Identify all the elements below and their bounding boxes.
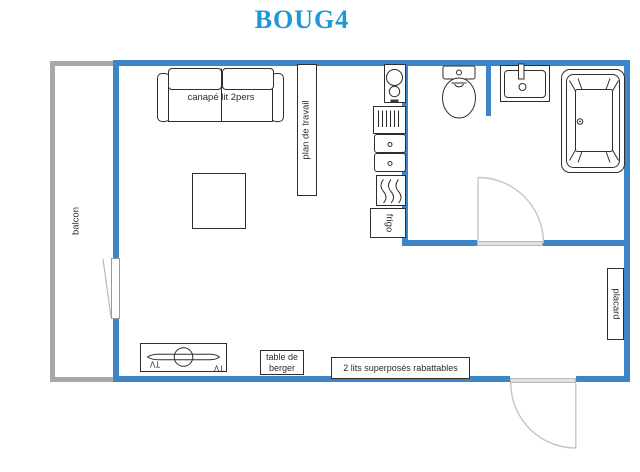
balcony-wall-top <box>50 61 113 66</box>
wall-left-lower <box>113 319 119 382</box>
toilet <box>443 66 476 118</box>
stove-unit <box>384 64 406 103</box>
entrance-door <box>511 383 576 448</box>
bathtub <box>561 69 625 173</box>
balcony-label: balcon <box>72 207 83 235</box>
kitchen-drawer-bottom <box>374 153 406 172</box>
coffee-table <box>192 173 246 229</box>
bathroom-door-lintel <box>477 241 543 246</box>
sofa-back-cushion-left <box>168 68 222 90</box>
radiator <box>376 175 406 206</box>
wall-top <box>113 60 630 66</box>
balcony-window-frame <box>111 258 120 319</box>
wall-toilet-stub <box>486 60 491 116</box>
closet-label: placard <box>610 288 621 319</box>
balcony-window-leaf <box>103 259 111 317</box>
shepherd-table: table de berger <box>260 350 304 375</box>
worktop-label: plan de travail <box>302 100 313 159</box>
wall-bottom-right <box>576 376 630 382</box>
plan-title: BOUG4 <box>0 5 604 35</box>
tv-label-right: TV <box>213 363 223 372</box>
wall-bathroom-bottom-right <box>543 240 630 246</box>
fridge-label: frigo <box>382 214 393 232</box>
sofa-back-cushion-right <box>222 68 274 90</box>
balcony-wall-bottom <box>50 377 113 382</box>
dish-rack-unit <box>373 106 406 134</box>
shepherd-table-label: table de berger <box>261 352 303 374</box>
bathroom-sink-basin <box>504 70 546 98</box>
floorplan-canvas: BOUG4 table de berger 2 lits supe <box>0 0 640 472</box>
bunk-beds-label: 2 lits superposés rabattables <box>343 363 458 374</box>
bathroom-door <box>478 178 544 244</box>
entrance-door-lintel <box>510 378 576 383</box>
bunk-beds: 2 lits superposés rabattables <box>331 357 470 379</box>
sofa-label: canapé lit 2pers <box>158 93 284 104</box>
kitchen-drawer-top <box>374 134 406 153</box>
balcony-wall-left <box>50 61 55 382</box>
tv-label-left: TV <box>150 359 160 368</box>
wall-left-upper <box>113 60 119 258</box>
wall-bathroom-bottom-left <box>402 240 477 246</box>
